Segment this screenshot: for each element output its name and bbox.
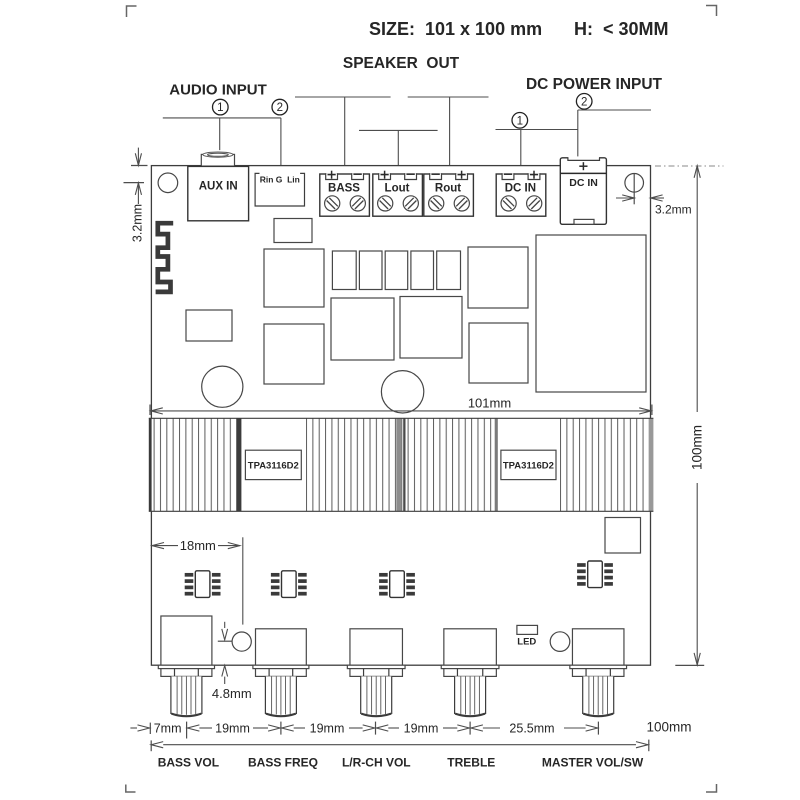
svg-text:7mm: 7mm bbox=[154, 721, 182, 735]
svg-text:Rin G Lin: Rin G Lin bbox=[260, 174, 300, 184]
svg-text:19mm: 19mm bbox=[404, 721, 439, 735]
svg-text:1: 1 bbox=[217, 102, 223, 114]
svg-text:L/R-CH VOL: L/R-CH VOL bbox=[342, 756, 411, 770]
svg-text:DC IN: DC IN bbox=[505, 183, 536, 195]
svg-text:100mm: 100mm bbox=[647, 720, 692, 735]
svg-text:101mm: 101mm bbox=[468, 396, 511, 411]
svg-text:2: 2 bbox=[277, 102, 283, 114]
svg-text:2: 2 bbox=[581, 96, 587, 108]
svg-text:MASTER VOL/SW: MASTER VOL/SW bbox=[542, 756, 644, 770]
svg-text:1: 1 bbox=[517, 115, 523, 127]
svg-text:Rout: Rout bbox=[435, 183, 461, 195]
svg-text:BASS FREQ: BASS FREQ bbox=[248, 756, 318, 770]
svg-text:AUX IN: AUX IN bbox=[199, 180, 238, 192]
svg-text:LED: LED bbox=[517, 637, 536, 648]
svg-text:18mm: 18mm bbox=[180, 538, 216, 553]
svg-text:BASS: BASS bbox=[328, 183, 360, 195]
svg-text:TPA3116D2: TPA3116D2 bbox=[248, 460, 299, 471]
svg-text:TPA3116D2: TPA3116D2 bbox=[503, 460, 554, 471]
svg-text:SPEAKER OUT: SPEAKER OUT bbox=[343, 55, 460, 72]
svg-text:DC IN: DC IN bbox=[569, 177, 598, 189]
svg-text:H: < 30MM: H: < 30MM bbox=[574, 19, 669, 39]
svg-text:TREBLE: TREBLE bbox=[447, 756, 495, 770]
svg-text:DC POWER INPUT: DC POWER INPUT bbox=[526, 76, 663, 93]
svg-text:4.8mm: 4.8mm bbox=[212, 686, 252, 701]
svg-text:SIZE: 101 x 100 mm: SIZE: 101 x 100 mm bbox=[369, 19, 542, 39]
svg-text:19mm: 19mm bbox=[310, 721, 345, 735]
svg-text:3.2mm: 3.2mm bbox=[655, 203, 692, 217]
svg-text:19mm: 19mm bbox=[215, 721, 250, 735]
svg-text:AUDIO INPUT: AUDIO INPUT bbox=[169, 82, 267, 99]
svg-text:25.5mm: 25.5mm bbox=[509, 721, 554, 735]
svg-text:Lout: Lout bbox=[385, 183, 410, 195]
svg-text:3.2mm: 3.2mm bbox=[131, 204, 145, 242]
svg-text:BASS VOL: BASS VOL bbox=[158, 756, 219, 770]
svg-text:100mm: 100mm bbox=[690, 425, 705, 470]
